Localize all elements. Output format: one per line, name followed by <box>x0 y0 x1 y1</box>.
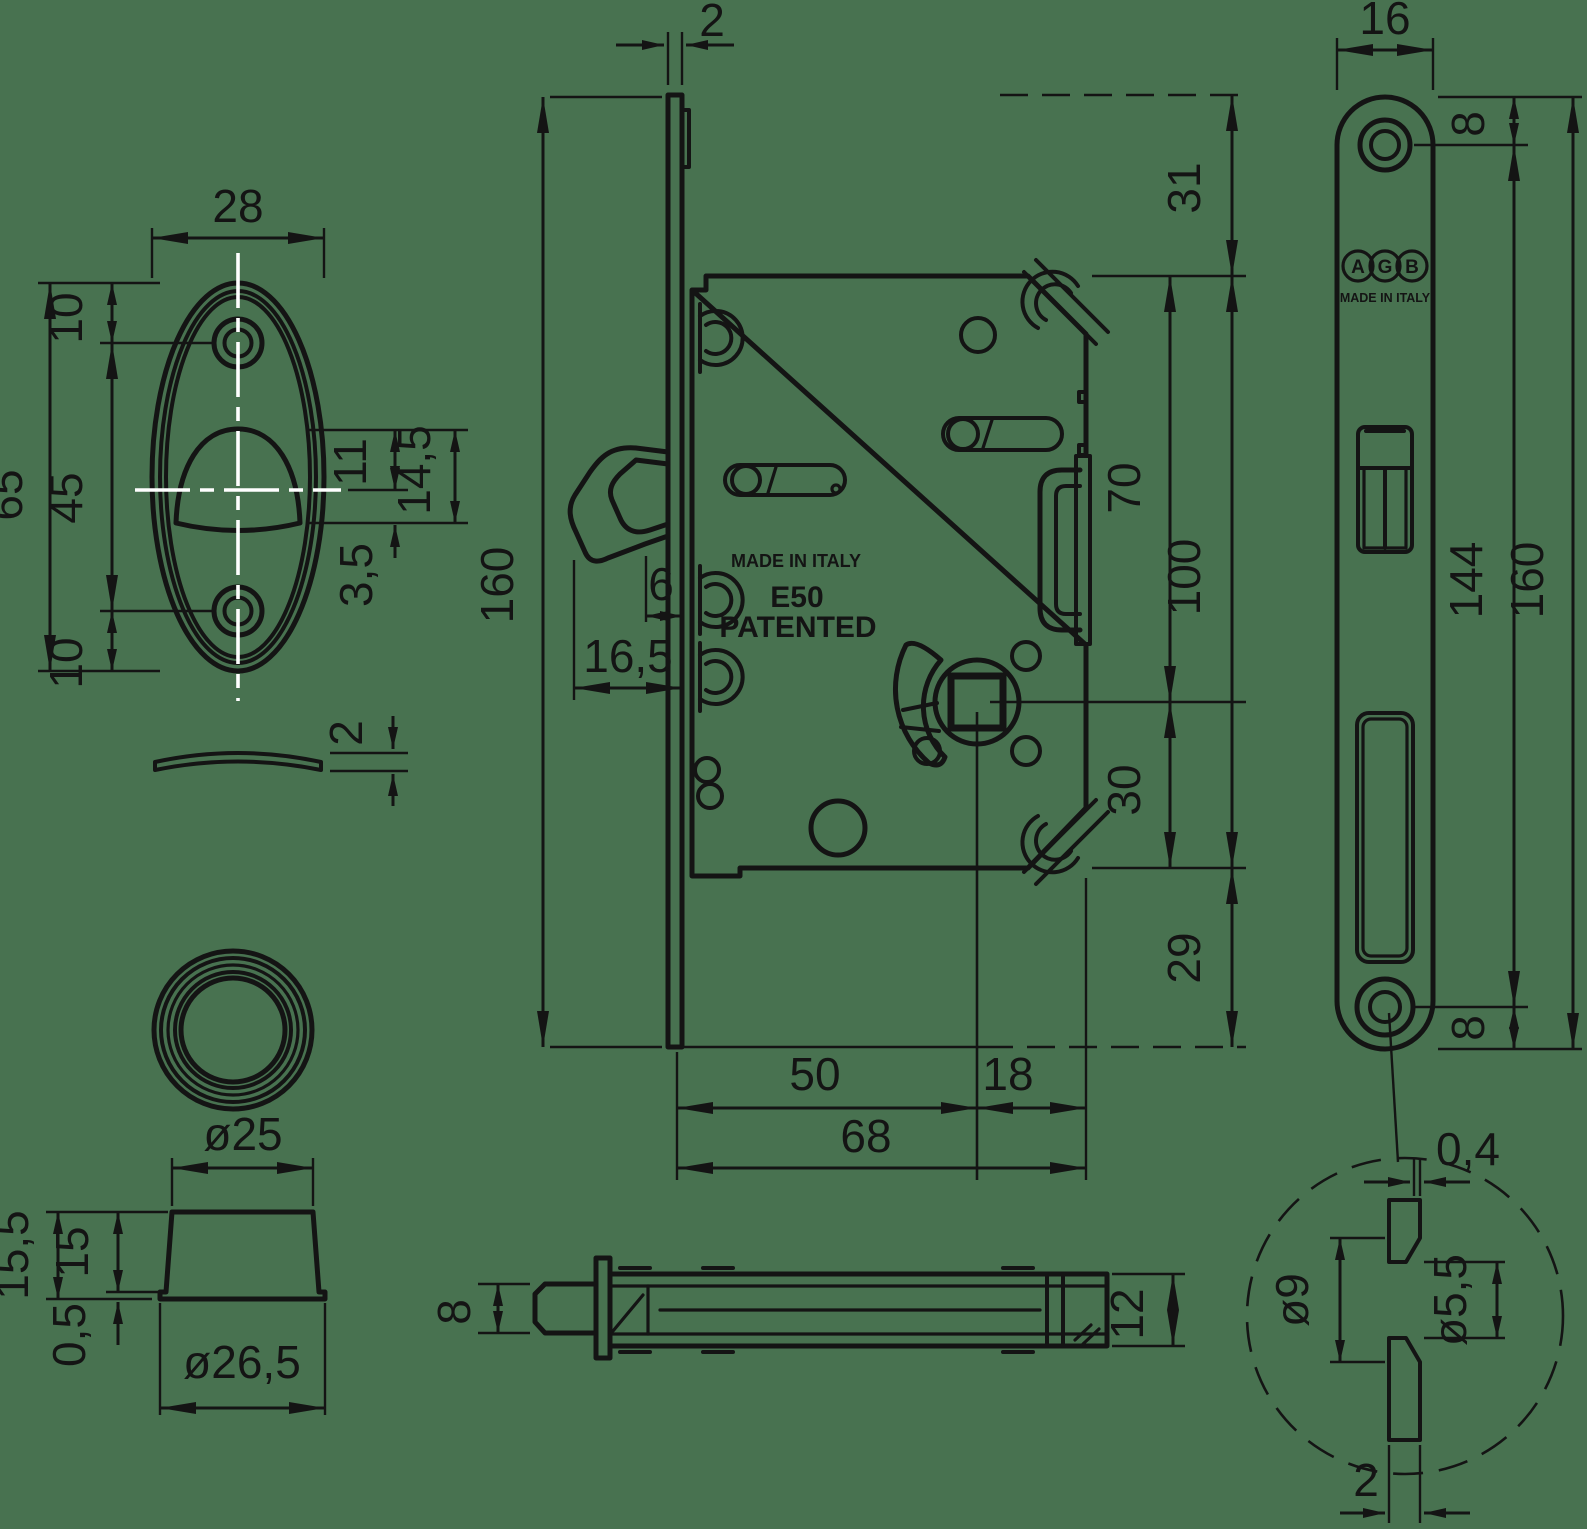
dim-spindle-from-top: 70 <box>1098 462 1150 513</box>
dim-height: 65 <box>0 469 32 520</box>
dim-bottom-margin: 29 <box>1158 932 1210 983</box>
dim-cup-flange-height: 0,5 <box>43 1303 95 1367</box>
dim-hole-bottom-offset: 8 <box>1442 1015 1494 1041</box>
dim-countersink-diameter: ø9 <box>1266 1273 1318 1327</box>
dim-hook-height: 8 <box>428 1299 480 1325</box>
dim-plate-thickness: 2 <box>320 720 372 746</box>
dim-hole-spacing: 45 <box>40 472 92 523</box>
dim-top-margin: 31 <box>1158 162 1210 213</box>
dim-faceplate-height: 160 <box>471 547 523 624</box>
dim-land: 0,4 <box>1436 1123 1500 1175</box>
dim-cup-height-body: 15 <box>46 1226 98 1277</box>
brand-letter-a: A <box>1351 257 1365 278</box>
brand-letter-g: G <box>1378 257 1393 278</box>
dim-cup-top-diameter: ø25 <box>203 1108 282 1160</box>
dim-case-thickness: 12 <box>1101 1288 1153 1339</box>
case-model: E50 <box>770 581 823 614</box>
dim-faceplate-thickness: 2 <box>699 0 725 46</box>
dim-hole-spacing: 144 <box>1440 542 1492 619</box>
dim-faceplate-full-height: 160 <box>1501 542 1553 619</box>
dim-cup-flange-diameter: ø26,5 <box>183 1336 301 1388</box>
dim-case-height: 100 <box>1158 539 1210 616</box>
lock-technical-drawing: 28 65 10 45 10 11 14,5 3,5 2 <box>0 0 1587 1529</box>
dim-hole-top: 10 <box>40 292 92 343</box>
dim-case-depth: 68 <box>840 1110 891 1162</box>
dim-hole-diameter: ø5,5 <box>1424 1254 1476 1346</box>
brand-letter-b: B <box>1405 257 1419 278</box>
dim-recess-lower: 3,5 <box>330 543 382 607</box>
faceplate-made-in-italy: MADE IN ITALY <box>1340 291 1431 305</box>
dim-backset: 50 <box>789 1048 840 1100</box>
dim-plate-thickness-detail: 2 <box>1353 1454 1379 1506</box>
dim-faceplate-width: 16 <box>1359 0 1410 44</box>
dim-hole-top-offset: 8 <box>1442 111 1494 137</box>
dim-case-extra: 18 <box>982 1048 1033 1100</box>
dim-width: 28 <box>212 180 263 232</box>
dim-cup-height-total: 15,5 <box>0 1210 38 1300</box>
technical-drawing-page: 28 65 10 45 10 11 14,5 3,5 2 <box>0 0 1587 1529</box>
case-patented: PATENTED <box>719 611 876 644</box>
dim-hook-inset: 16,5 <box>583 630 673 682</box>
dim-hook-offset: 6 <box>648 558 674 610</box>
case-made-in-italy: MADE IN ITALY <box>731 551 861 571</box>
dim-spindle-to-bottom: 30 <box>1098 764 1150 815</box>
dim-recess-upper: 11 <box>324 438 376 486</box>
dim-hole-bottom: 10 <box>40 637 92 688</box>
